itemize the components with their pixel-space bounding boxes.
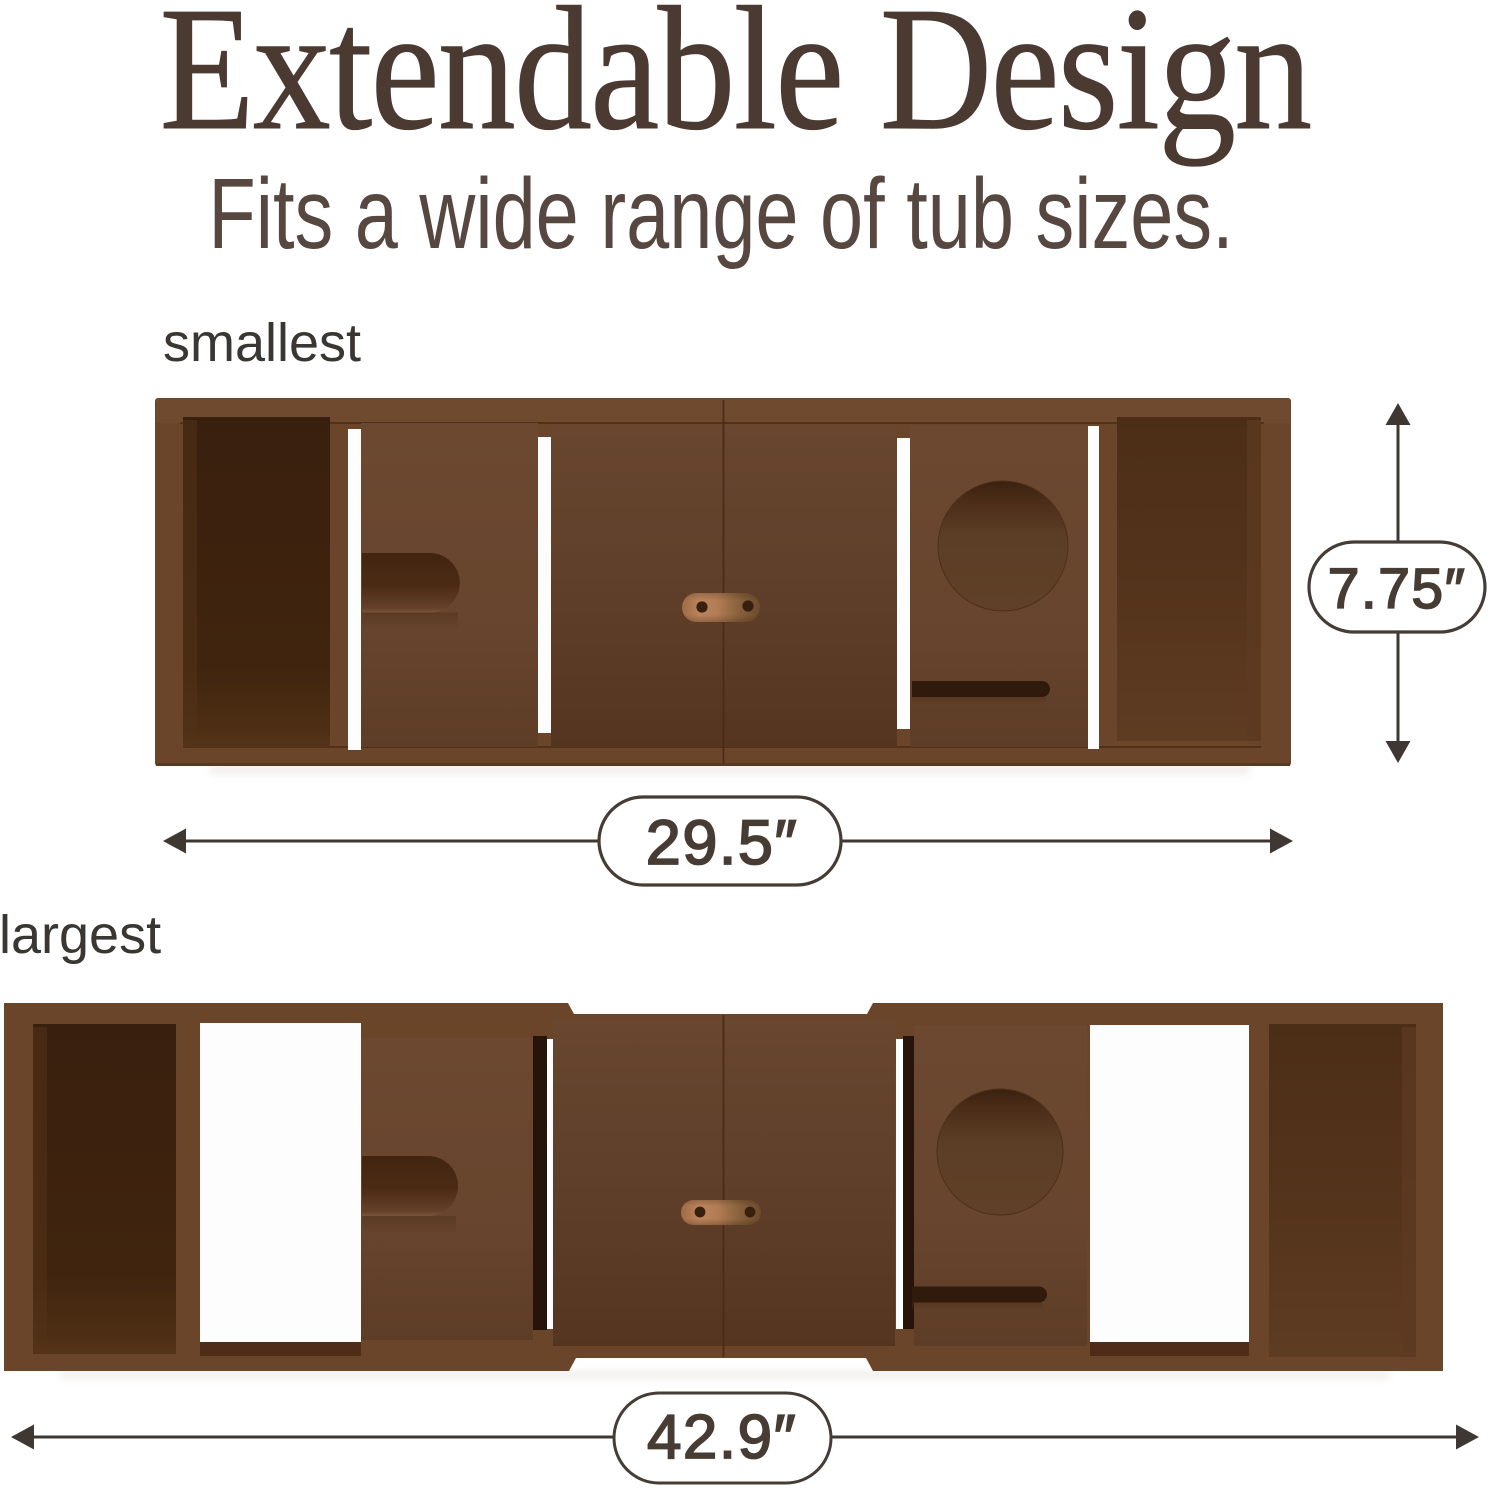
svg-text:7.75″: 7.75″ <box>1328 557 1467 621</box>
svg-text:29.5″: 29.5″ <box>646 808 798 878</box>
svg-text:42.9″: 42.9″ <box>647 1403 797 1472</box>
